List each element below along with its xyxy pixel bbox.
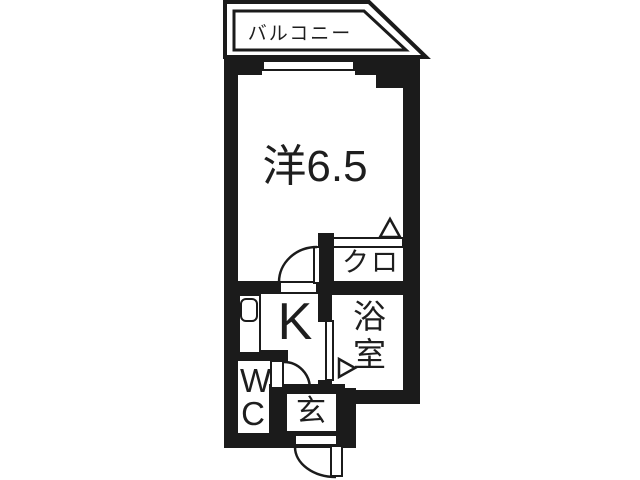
closet-label: クロ: [342, 250, 400, 277]
wall-closet-bath-divider: [318, 281, 420, 295]
balcony-label: バルコニー: [248, 25, 353, 44]
bathroom-label: 浴室: [351, 299, 384, 375]
room-door-leaf: [313, 246, 321, 284]
kitchen-sink-icon: [240, 298, 258, 322]
window-icon: [262, 60, 355, 71]
entrance-label: 玄: [296, 397, 326, 427]
wall-kitchen-bath-upper: [318, 295, 332, 322]
bath-door-leaf: [325, 320, 334, 381]
closet-door-triangle-icon: [380, 219, 400, 237]
wall-right: [403, 57, 420, 404]
wall-left: [224, 57, 238, 448]
wc-door-leaf: [270, 360, 284, 389]
closet-door-bar: [332, 237, 404, 248]
front-door-leaf: [330, 445, 343, 477]
floor-plan: バルコニー 洋6.5 クロ K 浴室 WC 玄: [0, 0, 640, 480]
toilet-label: WC: [240, 364, 266, 430]
main-room-label: 洋6.5: [262, 145, 367, 189]
wall-room-bottom: [224, 281, 279, 294]
kitchen-label: K: [278, 296, 313, 348]
room-door-arc-icon: [279, 247, 317, 282]
